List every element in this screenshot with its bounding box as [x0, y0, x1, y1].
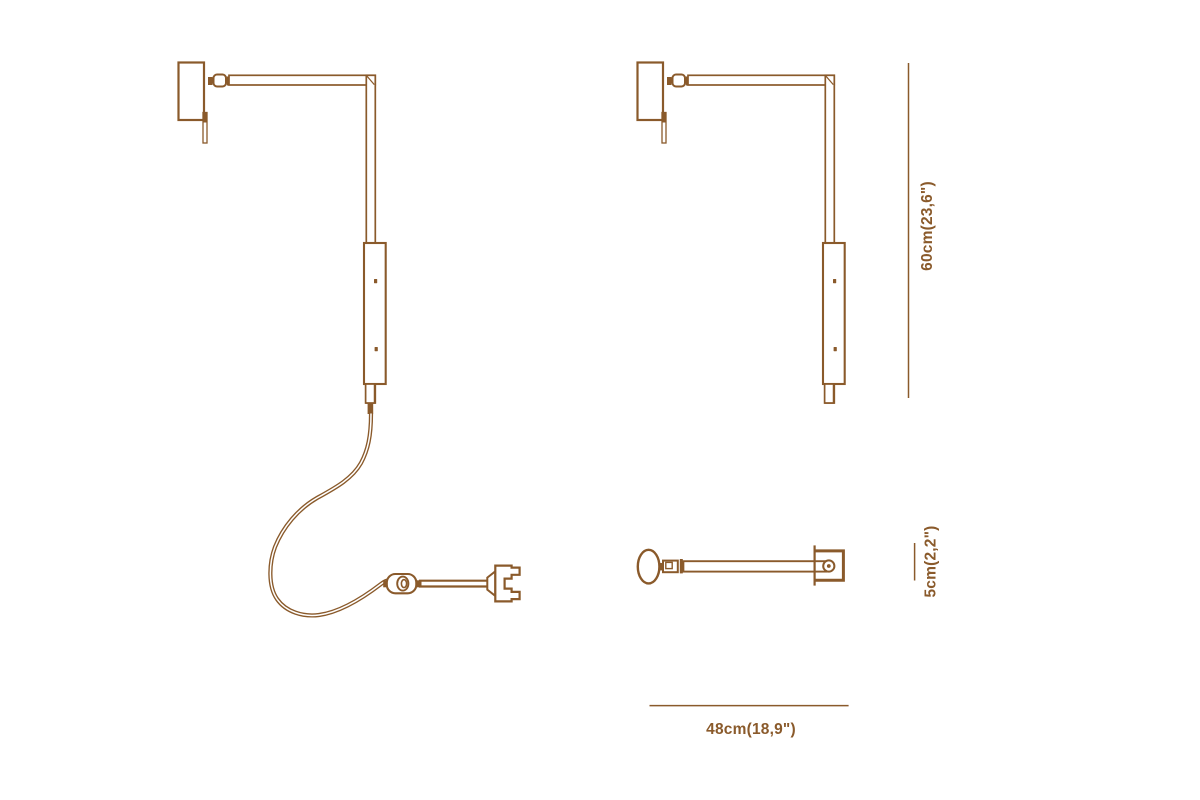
dimension-annotations: 60cm(23,6") 5cm(2,2") 48cm(18,9"): [650, 63, 940, 738]
head-joint-tick: [680, 559, 683, 573]
depth-dimension-label: 48cm(18,9"): [706, 721, 796, 738]
top-view: [638, 545, 844, 585]
lamp-front-outline: [179, 63, 386, 404]
power-cord-curve-inner: [270, 414, 389, 615]
height-dimension-label: 60cm(23,6"): [919, 181, 936, 271]
power-plug: [495, 566, 519, 602]
front-view-dimensioned: [638, 63, 845, 404]
mount-screw-center: [827, 564, 831, 568]
lamp-front-outline: [638, 63, 845, 404]
front-view-with-cord: [179, 63, 520, 616]
arm-top-view: [683, 561, 826, 571]
power-cord-curve: [270, 414, 389, 615]
wall-lamp-dimension-drawing: 60cm(23,6") 5cm(2,2") 48cm(18,9"): [0, 0, 1200, 800]
lamp-head: [638, 550, 660, 584]
head-dimension-label: 5cm(2,2"): [923, 525, 940, 597]
plug-cord-grip: [487, 571, 495, 596]
